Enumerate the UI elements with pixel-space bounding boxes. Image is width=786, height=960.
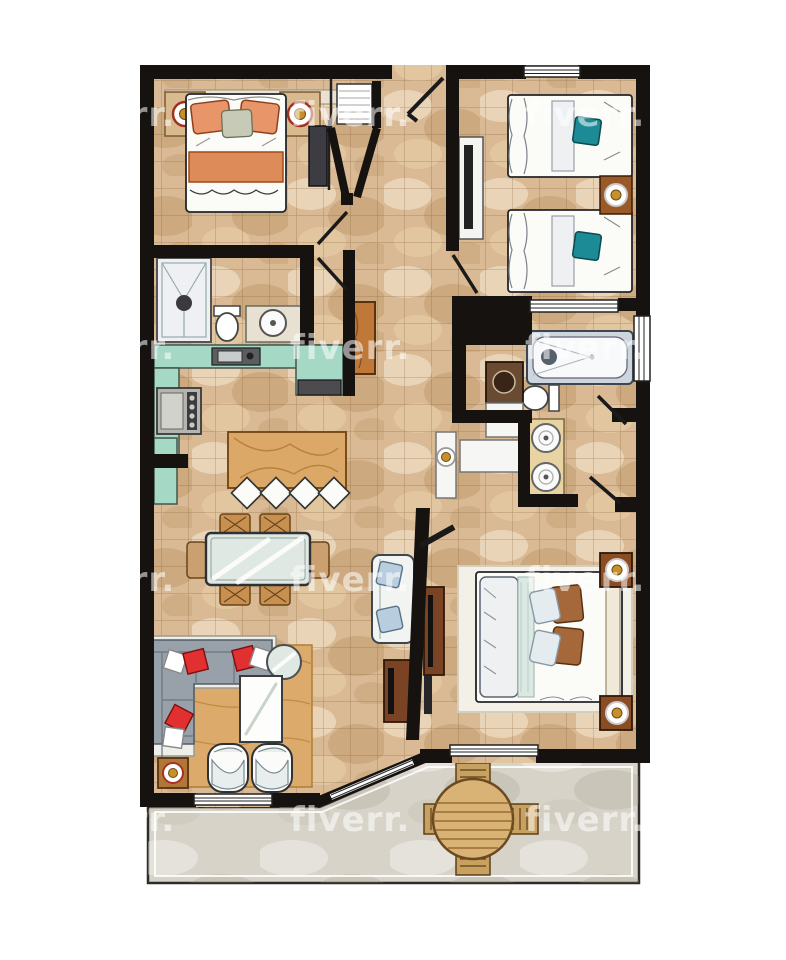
fiverr-watermark: fiverr. [525,800,645,840]
fiverr-watermark: fiverr. [55,560,175,600]
fiverr-watermark: fiverr. [55,328,175,368]
fiverr-watermark: fiverr. [525,560,645,600]
fiverr-watermark: fiverr. [290,95,410,135]
fiverr-watermark: fiverr. [525,328,645,368]
fiverr-watermark: fiverr. [290,560,410,600]
watermark-layer: fiverr.fiverr.fiverr.fiverr.fiverr.fiver… [0,0,786,960]
fiverr-watermark: fiverr. [55,95,175,135]
fiverr-watermark: fiverr. [525,95,645,135]
floor-plan-canvas: fiverr.fiverr.fiverr.fiverr.fiverr.fiver… [0,0,786,960]
fiverr-watermark: fiverr. [290,328,410,368]
fiverr-watermark: fiverr. [290,800,410,840]
fiverr-watermark: fiverr. [55,800,175,840]
